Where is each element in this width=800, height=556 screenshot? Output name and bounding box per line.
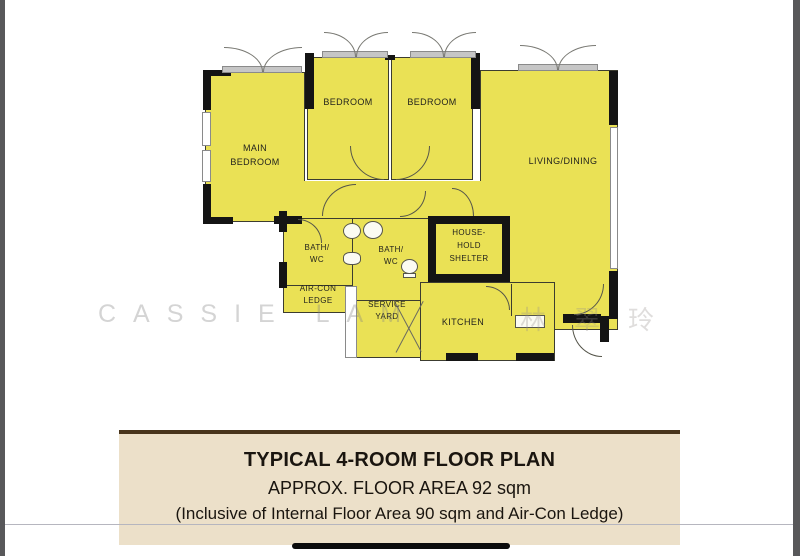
label-bath-left: BATH/ WC	[288, 242, 346, 266]
caption-panel: TYPICAL 4-ROOM FLOOR PLAN APPROX. FLOOR …	[119, 430, 680, 545]
wall-mb-left-top	[203, 70, 211, 110]
floorplan-page: MAIN BEDROOM BEDROOM BEDROOM LIVING/DINI…	[0, 0, 800, 556]
label-line: WC	[288, 254, 346, 266]
window-left-edge	[0, 0, 5, 556]
wall-living-right-top	[609, 71, 618, 125]
label-household-shelter: HOUSE- HOLD SHELTER	[436, 227, 502, 265]
window-leaf-icon	[558, 45, 596, 70]
label-line: BATH/	[288, 242, 346, 254]
wall-kitchen-bottom-left	[446, 353, 478, 361]
wall-mb-bottom-left	[205, 217, 233, 224]
plan-title: TYPICAL 4-ROOM FLOOR PLAN	[119, 449, 680, 472]
label-line: BEDROOM	[210, 156, 300, 170]
label-kitchen: KITCHEN	[420, 316, 506, 330]
wall-bedroom-right-pier	[471, 53, 480, 109]
wall-bathleft-top	[279, 211, 287, 232]
window-leaf-icon	[412, 32, 444, 57]
label-bath-right: BATH/ WC	[362, 244, 420, 268]
bottom-divider-bar	[292, 543, 510, 549]
label-line: BATH/	[362, 244, 420, 256]
watermark-agent-name-cjk: 林翠玲	[520, 300, 682, 337]
kitchen-partition-wall	[511, 284, 512, 316]
window-leaf-icon	[224, 47, 263, 72]
label-bedroom-left: BEDROOM	[308, 96, 388, 110]
plan-area: APPROX. FLOOR AREA 92 sqm	[119, 478, 680, 499]
label-line: HOLD	[436, 240, 502, 253]
label-living-dining: LIVING/DINING	[503, 155, 623, 169]
label-line: MAIN	[210, 142, 300, 156]
label-main-bedroom: MAIN BEDROOM	[210, 142, 300, 169]
horizontal-rule	[5, 524, 793, 525]
floor-plan: MAIN BEDROOM BEDROOM BEDROOM LIVING/DINI…	[0, 0, 800, 430]
label-line: SHELTER	[436, 253, 502, 266]
basin-icon	[363, 221, 383, 239]
window-right-edge	[793, 0, 800, 556]
label-line: WC	[362, 256, 420, 268]
basin-icon	[343, 223, 361, 239]
window-living-side	[610, 127, 618, 269]
window-main-bedroom-side-1	[202, 112, 211, 146]
label-line: HOUSE-	[436, 227, 502, 240]
label-bedroom-right: BEDROOM	[392, 96, 472, 110]
window-leaf-icon	[324, 32, 356, 57]
plan-area-note: (Inclusive of Internal Floor Area 90 sqm…	[119, 504, 680, 524]
window-leaf-icon	[356, 32, 388, 57]
window-leaf-icon	[444, 32, 476, 57]
label-line: AIR-CON	[286, 283, 350, 295]
toilet-base-icon	[403, 273, 416, 278]
window-leaf-icon	[263, 47, 302, 72]
watermark-agent-name: CASSIE LAM	[98, 300, 418, 329]
wall-kitchen-bottom-right	[516, 353, 554, 361]
window-leaf-icon	[520, 45, 558, 70]
